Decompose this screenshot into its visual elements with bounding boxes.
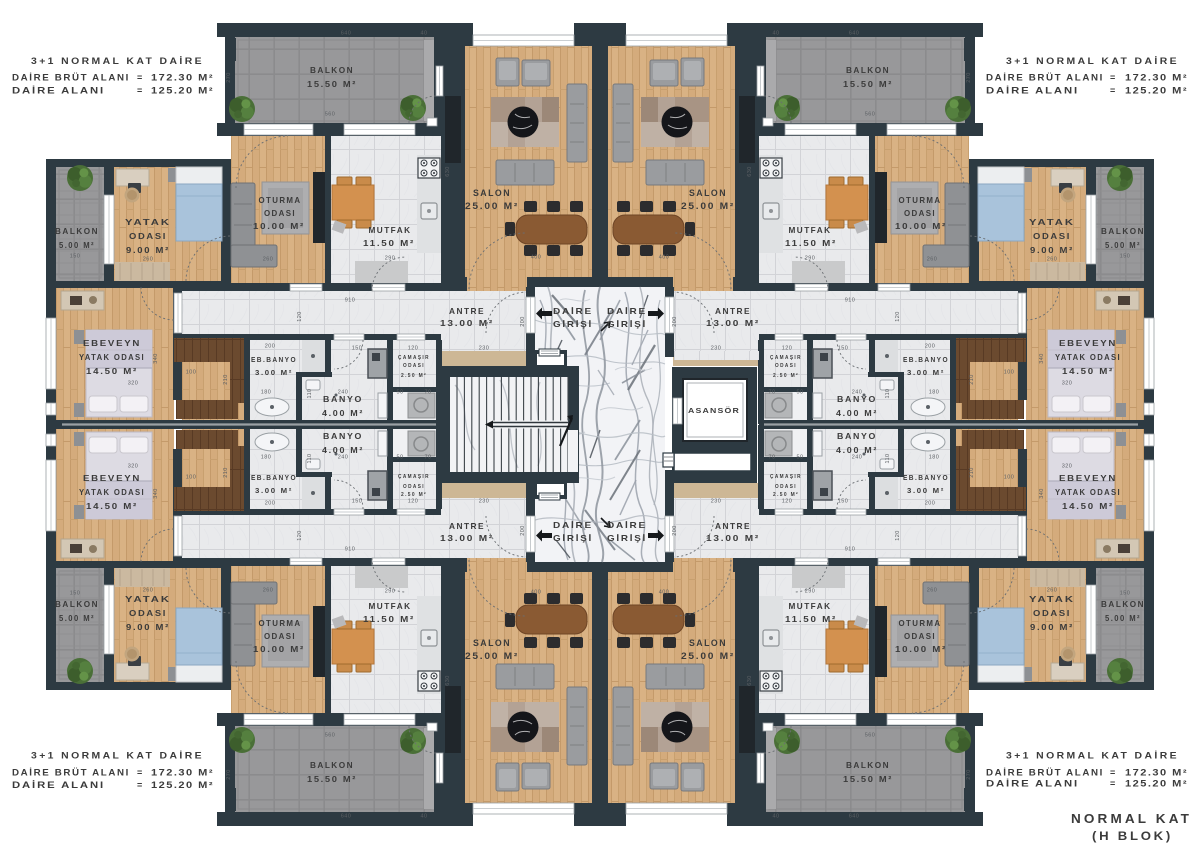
svg-text:OTURMA: OTURMA bbox=[899, 195, 942, 205]
svg-text:240: 240 bbox=[852, 390, 862, 396]
svg-text:15.50 M²: 15.50 M² bbox=[843, 79, 893, 89]
svg-text:180: 180 bbox=[929, 455, 939, 461]
svg-text:YATAK ODASI: YATAK ODASI bbox=[1055, 352, 1121, 362]
svg-text:25.00 M²: 25.00 M² bbox=[465, 651, 519, 661]
svg-text:5.00 M²: 5.00 M² bbox=[59, 614, 95, 623]
svg-text:40: 40 bbox=[421, 31, 428, 37]
svg-text:BANYO: BANYO bbox=[837, 432, 877, 441]
svg-text:13.00 M²: 13.00 M² bbox=[706, 318, 760, 328]
svg-text:MUTFAK: MUTFAK bbox=[789, 601, 832, 611]
svg-text:120: 120 bbox=[895, 530, 901, 540]
svg-text:3.00 M²: 3.00 M² bbox=[255, 488, 293, 495]
svg-text:ODASI: ODASI bbox=[129, 231, 167, 241]
svg-text:25.00 M²: 25.00 M² bbox=[681, 651, 735, 661]
svg-text:=: = bbox=[1110, 779, 1115, 789]
svg-text:=: = bbox=[137, 86, 142, 96]
svg-text:ODASI: ODASI bbox=[129, 608, 167, 618]
svg-text:150: 150 bbox=[352, 346, 362, 352]
svg-text:560: 560 bbox=[325, 112, 335, 118]
svg-text:630: 630 bbox=[445, 675, 451, 685]
svg-text:DAİRE: DAİRE bbox=[553, 306, 593, 316]
svg-text:ODASI: ODASI bbox=[264, 631, 296, 641]
svg-text:5.00 M²: 5.00 M² bbox=[59, 241, 95, 250]
svg-text:150: 150 bbox=[352, 499, 362, 505]
svg-text:5.00 M²: 5.00 M² bbox=[1105, 241, 1141, 250]
svg-text:340: 340 bbox=[153, 353, 159, 363]
svg-text:320: 320 bbox=[128, 381, 138, 387]
svg-text:25.00 M²: 25.00 M² bbox=[681, 201, 735, 211]
svg-text:320: 320 bbox=[128, 464, 138, 470]
svg-text:EBEVEYN: EBEVEYN bbox=[1059, 473, 1117, 483]
svg-text:560: 560 bbox=[865, 112, 875, 118]
svg-text:14.50 M²: 14.50 M² bbox=[86, 501, 138, 511]
svg-text:ODASI: ODASI bbox=[403, 363, 425, 369]
svg-text:15.50 M²: 15.50 M² bbox=[843, 774, 893, 784]
svg-text:ANTRE: ANTRE bbox=[715, 521, 751, 531]
svg-text:120: 120 bbox=[782, 499, 792, 505]
svg-text:ODASI: ODASI bbox=[264, 208, 296, 218]
svg-text:210: 210 bbox=[223, 374, 229, 384]
svg-text:400: 400 bbox=[531, 255, 541, 261]
svg-text:ÇAMAŞIR: ÇAMAŞIR bbox=[398, 474, 430, 480]
svg-text:230: 230 bbox=[479, 346, 489, 352]
svg-text:200: 200 bbox=[265, 344, 275, 350]
svg-text:ODASI: ODASI bbox=[1033, 608, 1071, 618]
svg-text:MUTFAK: MUTFAK bbox=[789, 225, 832, 235]
svg-text:BALKON: BALKON bbox=[1101, 227, 1145, 236]
svg-text:270: 270 bbox=[966, 72, 972, 82]
svg-text:910: 910 bbox=[345, 547, 355, 553]
svg-text:125.20 M²: 125.20 M² bbox=[1125, 779, 1188, 789]
svg-text:DAİRE ALANI: DAİRE ALANI bbox=[12, 780, 105, 790]
svg-text:YATAK: YATAK bbox=[1029, 594, 1075, 604]
svg-text:320: 320 bbox=[1062, 381, 1072, 387]
svg-text:260: 260 bbox=[927, 257, 937, 263]
svg-text:340: 340 bbox=[1039, 353, 1045, 363]
svg-text:640: 640 bbox=[849, 814, 859, 820]
svg-text:110: 110 bbox=[307, 454, 313, 464]
svg-text:ANTRE: ANTRE bbox=[449, 306, 485, 316]
svg-text:125.20 M²: 125.20 M² bbox=[1125, 86, 1188, 96]
svg-text:110: 110 bbox=[307, 389, 313, 399]
svg-text:210: 210 bbox=[969, 374, 975, 384]
svg-text:100: 100 bbox=[186, 370, 196, 376]
svg-text:=: = bbox=[1110, 73, 1115, 83]
svg-text:BALKON: BALKON bbox=[846, 65, 890, 75]
svg-text:4.00 M²: 4.00 M² bbox=[322, 409, 364, 418]
svg-text:YATAK ODASI: YATAK ODASI bbox=[79, 352, 145, 362]
svg-text:640: 640 bbox=[341, 31, 351, 37]
svg-text:200: 200 bbox=[925, 501, 935, 507]
svg-text:180: 180 bbox=[261, 390, 271, 396]
svg-text:40: 40 bbox=[773, 31, 780, 37]
svg-text:200: 200 bbox=[520, 525, 526, 535]
svg-text:DAİRE BRÜT ALANI: DAİRE BRÜT ALANI bbox=[986, 768, 1104, 778]
svg-text:260: 260 bbox=[143, 588, 153, 594]
svg-text:DAİRE ALANI: DAİRE ALANI bbox=[986, 86, 1079, 96]
svg-text:50: 50 bbox=[797, 455, 804, 461]
svg-text:100: 100 bbox=[1004, 370, 1014, 376]
svg-text:50: 50 bbox=[397, 390, 404, 396]
svg-text:=: = bbox=[137, 780, 142, 790]
svg-text:ÇAMAŞIR: ÇAMAŞIR bbox=[398, 355, 430, 361]
svg-text:BANYO: BANYO bbox=[323, 395, 363, 404]
svg-text:290: 290 bbox=[385, 256, 395, 262]
svg-text:=: = bbox=[1110, 768, 1115, 778]
svg-text:BANYO: BANYO bbox=[837, 395, 877, 404]
svg-text:13.00 M²: 13.00 M² bbox=[440, 318, 494, 328]
svg-text:172.30 M²: 172.30 M² bbox=[151, 768, 214, 778]
svg-text:560: 560 bbox=[325, 733, 335, 739]
svg-text:DAİRE: DAİRE bbox=[607, 306, 647, 316]
svg-text:3.00 M²: 3.00 M² bbox=[907, 370, 945, 377]
svg-text:9.00 M²: 9.00 M² bbox=[126, 245, 170, 255]
svg-text:BALKON: BALKON bbox=[55, 600, 99, 609]
svg-text:400: 400 bbox=[659, 590, 669, 596]
svg-text:DAİRE ALANI: DAİRE ALANI bbox=[12, 86, 105, 96]
svg-text:910: 910 bbox=[845, 298, 855, 304]
svg-text:SALON: SALON bbox=[689, 638, 727, 648]
svg-text:270: 270 bbox=[226, 769, 232, 779]
svg-text:15.50 M²: 15.50 M² bbox=[307, 79, 357, 89]
svg-text:ODASI: ODASI bbox=[904, 631, 936, 641]
svg-text:150: 150 bbox=[838, 346, 848, 352]
svg-text:10.00 M²: 10.00 M² bbox=[895, 644, 947, 654]
svg-text:ÇAMAŞIR: ÇAMAŞIR bbox=[770, 474, 802, 480]
svg-text:BALKON: BALKON bbox=[310, 65, 354, 75]
svg-text:120: 120 bbox=[297, 530, 303, 540]
svg-text:125.20 M²: 125.20 M² bbox=[151, 780, 214, 790]
svg-text:400: 400 bbox=[659, 255, 669, 261]
svg-text:150: 150 bbox=[70, 254, 80, 260]
svg-text:230: 230 bbox=[479, 499, 489, 505]
svg-text:290: 290 bbox=[805, 589, 815, 595]
svg-text:15.50 M²: 15.50 M² bbox=[307, 774, 357, 784]
svg-text:2.50 M²: 2.50 M² bbox=[401, 372, 427, 379]
svg-text:BALKON: BALKON bbox=[846, 760, 890, 770]
svg-text:120: 120 bbox=[408, 346, 418, 352]
svg-text:11.50 M²: 11.50 M² bbox=[785, 238, 837, 248]
svg-text:270: 270 bbox=[966, 769, 972, 779]
svg-text:560: 560 bbox=[865, 733, 875, 739]
svg-text:630: 630 bbox=[747, 675, 753, 685]
svg-text:910: 910 bbox=[845, 547, 855, 553]
svg-text:200: 200 bbox=[672, 525, 678, 535]
svg-text:70: 70 bbox=[769, 390, 776, 396]
svg-text:200: 200 bbox=[265, 501, 275, 507]
svg-text:ODASI: ODASI bbox=[775, 363, 797, 369]
svg-text:200: 200 bbox=[520, 316, 526, 326]
svg-text:70: 70 bbox=[425, 455, 432, 461]
svg-text:EBEVEYN: EBEVEYN bbox=[83, 338, 141, 348]
svg-text:172.30 M²: 172.30 M² bbox=[151, 73, 214, 83]
svg-text:340: 340 bbox=[1039, 488, 1045, 498]
svg-text:172.30 M²: 172.30 M² bbox=[1125, 768, 1188, 778]
svg-text:910: 910 bbox=[345, 298, 355, 304]
svg-text:ÇAMAŞIR: ÇAMAŞIR bbox=[770, 355, 802, 361]
svg-text:150: 150 bbox=[1120, 591, 1130, 597]
svg-text:3.00 M²: 3.00 M² bbox=[255, 370, 293, 377]
svg-text:13.00 M²: 13.00 M² bbox=[706, 533, 760, 543]
svg-text:GİRİŞİ: GİRİŞİ bbox=[553, 533, 593, 543]
svg-text:3+1 NORMAL KAT DAİRE: 3+1 NORMAL KAT DAİRE bbox=[1006, 56, 1179, 67]
svg-text:DAİRE ALANI: DAİRE ALANI bbox=[986, 779, 1079, 789]
svg-text:YATAK: YATAK bbox=[125, 594, 171, 604]
svg-text:DAİRE: DAİRE bbox=[607, 520, 647, 530]
svg-text:ODASI: ODASI bbox=[775, 484, 797, 490]
svg-text:OTURMA: OTURMA bbox=[259, 195, 302, 205]
svg-text:BALKON: BALKON bbox=[55, 227, 99, 236]
svg-text:NORMAL KAT: NORMAL KAT bbox=[1071, 811, 1192, 826]
svg-text:3+1 NORMAL KAT DAİRE: 3+1 NORMAL KAT DAİRE bbox=[31, 751, 204, 762]
svg-text:260: 260 bbox=[263, 588, 273, 594]
svg-text:11.50 M²: 11.50 M² bbox=[785, 614, 837, 624]
svg-text:=: = bbox=[1110, 86, 1115, 96]
svg-text:120: 120 bbox=[895, 311, 901, 321]
svg-text:GİRİŞİ: GİRİŞİ bbox=[607, 533, 647, 543]
svg-text:240: 240 bbox=[338, 390, 348, 396]
svg-text:50: 50 bbox=[397, 455, 404, 461]
svg-text:120: 120 bbox=[297, 311, 303, 321]
svg-text:640: 640 bbox=[341, 814, 351, 820]
svg-text:3+1 NORMAL KAT DAİRE: 3+1 NORMAL KAT DAİRE bbox=[31, 56, 204, 67]
svg-text:290: 290 bbox=[385, 589, 395, 595]
svg-text:40: 40 bbox=[421, 814, 428, 820]
svg-text:260: 260 bbox=[927, 588, 937, 594]
svg-text:120: 120 bbox=[782, 346, 792, 352]
svg-text:GİRİŞİ: GİRİŞİ bbox=[553, 319, 593, 329]
svg-text:100: 100 bbox=[186, 475, 196, 481]
svg-text:10.00 M²: 10.00 M² bbox=[895, 221, 947, 231]
svg-text:4.00 M²: 4.00 M² bbox=[836, 409, 878, 418]
svg-text:2.50 M²: 2.50 M² bbox=[401, 491, 427, 498]
svg-text:ANTRE: ANTRE bbox=[449, 521, 485, 531]
svg-text:210: 210 bbox=[969, 467, 975, 477]
svg-text:YATAK: YATAK bbox=[1029, 217, 1075, 227]
svg-text:ASANSÖR: ASANSÖR bbox=[688, 406, 740, 415]
svg-text:110: 110 bbox=[885, 454, 891, 464]
svg-text:640: 640 bbox=[849, 31, 859, 37]
svg-text:13.00 M²: 13.00 M² bbox=[440, 533, 494, 543]
svg-text:DAİRE BRÜT ALANI: DAİRE BRÜT ALANI bbox=[12, 73, 130, 83]
svg-text:11.50 M²: 11.50 M² bbox=[363, 614, 415, 624]
svg-text:EBEVEYN: EBEVEYN bbox=[1059, 338, 1117, 348]
svg-text:70: 70 bbox=[769, 455, 776, 461]
svg-text:5.00 M²: 5.00 M² bbox=[1105, 614, 1141, 623]
svg-text:SALON: SALON bbox=[473, 638, 511, 648]
svg-text:260: 260 bbox=[1047, 257, 1057, 263]
svg-text:150: 150 bbox=[70, 591, 80, 597]
svg-text:290: 290 bbox=[805, 256, 815, 262]
svg-text:DAİRE BRÜT ALANI: DAİRE BRÜT ALANI bbox=[986, 73, 1104, 83]
svg-text:2.50 M²: 2.50 M² bbox=[773, 491, 799, 498]
svg-text:14.50 M²: 14.50 M² bbox=[86, 366, 138, 376]
svg-text:EB.BANYO: EB.BANYO bbox=[903, 475, 949, 482]
svg-text:630: 630 bbox=[445, 166, 451, 176]
svg-text:9.00 M²: 9.00 M² bbox=[126, 622, 170, 632]
svg-text:120: 120 bbox=[408, 499, 418, 505]
svg-text:200: 200 bbox=[925, 344, 935, 350]
svg-text:270: 270 bbox=[226, 72, 232, 82]
svg-text:=: = bbox=[137, 73, 142, 83]
svg-text:25.00 M²: 25.00 M² bbox=[465, 201, 519, 211]
svg-text:180: 180 bbox=[261, 455, 271, 461]
svg-text:(H BLOK): (H BLOK) bbox=[1092, 829, 1173, 843]
svg-text:240: 240 bbox=[852, 455, 862, 461]
svg-text:260: 260 bbox=[143, 257, 153, 263]
svg-text:14.50 M²: 14.50 M² bbox=[1062, 366, 1114, 376]
svg-text:=: = bbox=[137, 768, 142, 778]
svg-text:230: 230 bbox=[711, 499, 721, 505]
svg-text:70: 70 bbox=[425, 390, 432, 396]
svg-text:ODASI: ODASI bbox=[403, 484, 425, 490]
svg-text:110: 110 bbox=[885, 389, 891, 399]
svg-text:11.50 M²: 11.50 M² bbox=[363, 238, 415, 248]
svg-text:EBEVEYN: EBEVEYN bbox=[83, 473, 141, 483]
svg-text:200: 200 bbox=[672, 316, 678, 326]
svg-text:172.30 M²: 172.30 M² bbox=[1125, 73, 1188, 83]
svg-text:MUTFAK: MUTFAK bbox=[369, 225, 412, 235]
svg-text:ODASI: ODASI bbox=[904, 208, 936, 218]
svg-text:GİRİŞİ: GİRİŞİ bbox=[607, 319, 647, 329]
svg-text:125.20 M²: 125.20 M² bbox=[151, 86, 214, 96]
svg-text:150: 150 bbox=[1120, 254, 1130, 260]
svg-text:OTURMA: OTURMA bbox=[899, 618, 942, 628]
svg-text:9.00 M²: 9.00 M² bbox=[1030, 622, 1074, 632]
svg-text:EB.BANYO: EB.BANYO bbox=[903, 357, 949, 364]
svg-text:BALKON: BALKON bbox=[310, 760, 354, 770]
svg-text:3.00 M²: 3.00 M² bbox=[907, 488, 945, 495]
svg-text:340: 340 bbox=[153, 488, 159, 498]
svg-text:320: 320 bbox=[1062, 464, 1072, 470]
svg-text:210: 210 bbox=[223, 467, 229, 477]
svg-text:EB.BANYO: EB.BANYO bbox=[251, 475, 297, 482]
svg-text:YATAK: YATAK bbox=[125, 217, 171, 227]
svg-text:230: 230 bbox=[711, 346, 721, 352]
svg-text:9.00 M²: 9.00 M² bbox=[1030, 245, 1074, 255]
svg-text:10.00 M²: 10.00 M² bbox=[253, 221, 305, 231]
svg-text:EB.BANYO: EB.BANYO bbox=[251, 357, 297, 364]
svg-text:260: 260 bbox=[263, 257, 273, 263]
svg-text:100: 100 bbox=[1004, 475, 1014, 481]
svg-text:SALON: SALON bbox=[689, 188, 727, 198]
svg-text:BALKON: BALKON bbox=[1101, 600, 1145, 609]
svg-text:260: 260 bbox=[1047, 588, 1057, 594]
svg-text:ODASI: ODASI bbox=[1033, 231, 1071, 241]
svg-text:240: 240 bbox=[338, 455, 348, 461]
svg-text:DAİRE: DAİRE bbox=[553, 520, 593, 530]
svg-text:10.00 M²: 10.00 M² bbox=[253, 644, 305, 654]
svg-text:630: 630 bbox=[747, 166, 753, 176]
svg-text:2.50 M²: 2.50 M² bbox=[773, 372, 799, 379]
svg-text:400: 400 bbox=[531, 590, 541, 596]
svg-text:3+1 NORMAL KAT DAİRE: 3+1 NORMAL KAT DAİRE bbox=[1006, 751, 1179, 762]
svg-text:SALON: SALON bbox=[473, 188, 511, 198]
svg-text:DAİRE BRÜT ALANI: DAİRE BRÜT ALANI bbox=[12, 768, 130, 778]
svg-text:YATAK ODASI: YATAK ODASI bbox=[1055, 487, 1121, 497]
svg-text:50: 50 bbox=[797, 390, 804, 396]
svg-text:180: 180 bbox=[929, 390, 939, 396]
svg-text:MUTFAK: MUTFAK bbox=[369, 601, 412, 611]
svg-text:40: 40 bbox=[773, 814, 780, 820]
svg-text:150: 150 bbox=[838, 499, 848, 505]
svg-text:OTURMA: OTURMA bbox=[259, 618, 302, 628]
svg-text:YATAK ODASI: YATAK ODASI bbox=[79, 487, 145, 497]
svg-text:14.50 M²: 14.50 M² bbox=[1062, 501, 1114, 511]
svg-text:BANYO: BANYO bbox=[323, 432, 363, 441]
svg-text:ANTRE: ANTRE bbox=[715, 306, 751, 316]
